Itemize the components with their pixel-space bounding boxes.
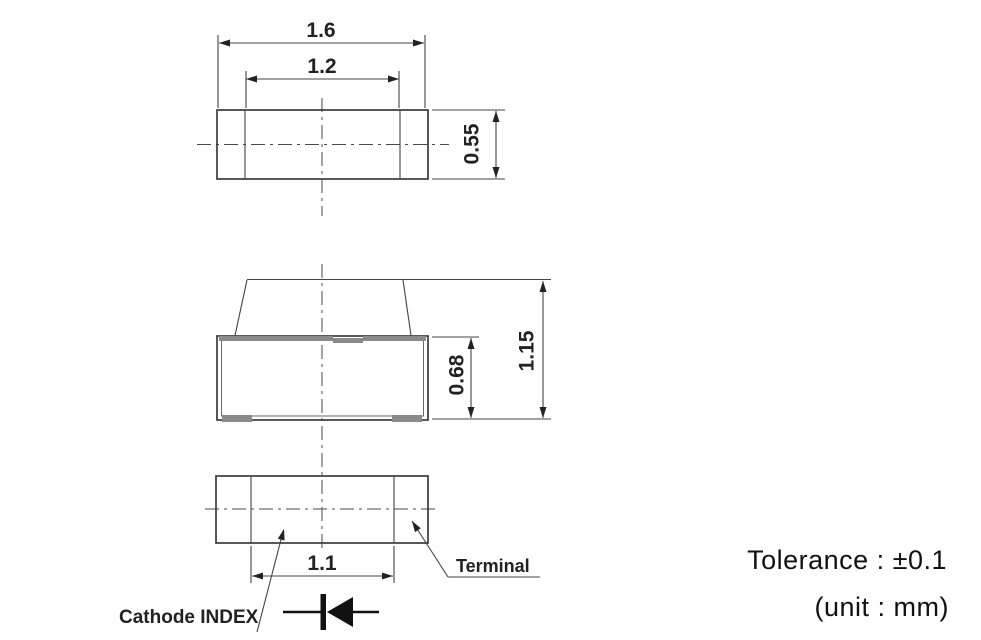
dim-terminal-pitch: 1.1 [251, 546, 394, 583]
led-package-drawing: 1.6 1.2 0.55 [0, 0, 981, 640]
dim-package-depth-label: 0.55 [461, 123, 484, 164]
diode-cathode-bar [321, 594, 327, 630]
arrowhead [540, 281, 547, 292]
dim-total-height-label: 1.15 [516, 330, 539, 371]
dim-total-height: 1.15 [516, 281, 547, 418]
arrowhead [252, 573, 263, 580]
body-top-band-right [363, 336, 426, 341]
dim-lens-width-label: 1.2 [307, 55, 336, 78]
side-view [217, 280, 551, 423]
diode-anode-triangle [327, 597, 353, 627]
terminal-callout: Terminal [412, 521, 540, 577]
diode-symbol-icon [283, 594, 379, 630]
right-terminal-foot [392, 415, 422, 422]
arrowhead [413, 40, 424, 47]
arrowhead [468, 407, 475, 418]
body-top-band-left [219, 336, 333, 341]
dim-terminal-pitch-label: 1.1 [307, 552, 337, 575]
arrowhead [382, 573, 393, 580]
dim-package-width-label: 1.6 [306, 19, 335, 42]
centerlines [197, 98, 449, 549]
arrowhead [246, 76, 257, 83]
arrowhead [468, 338, 475, 349]
notes: Tolerance : ±0.1 (unit : mm) [747, 545, 949, 622]
body-top-band-step [333, 338, 363, 343]
lens-left-slant [235, 280, 247, 336]
terminal-label: Terminal [456, 556, 530, 576]
mechanical-drawing-page: 1.6 1.2 0.55 [0, 0, 981, 640]
unit-note: (unit : mm) [814, 592, 949, 622]
lens-right-slant [403, 280, 411, 336]
arrowhead [493, 167, 500, 178]
arrowhead [493, 111, 500, 122]
cathode-index-callout: Cathode INDEX [119, 529, 285, 632]
arrowhead [278, 529, 285, 541]
leader-line [257, 530, 284, 632]
tolerance-note: Tolerance : ±0.1 [747, 545, 947, 575]
arrowhead [219, 40, 230, 47]
dim-body-height-label: 0.68 [446, 354, 469, 395]
cathode-index-label: Cathode INDEX [119, 607, 259, 628]
left-terminal-foot [222, 415, 252, 422]
arrowhead [388, 76, 399, 83]
arrowhead [540, 407, 547, 418]
arrowhead [412, 521, 421, 532]
